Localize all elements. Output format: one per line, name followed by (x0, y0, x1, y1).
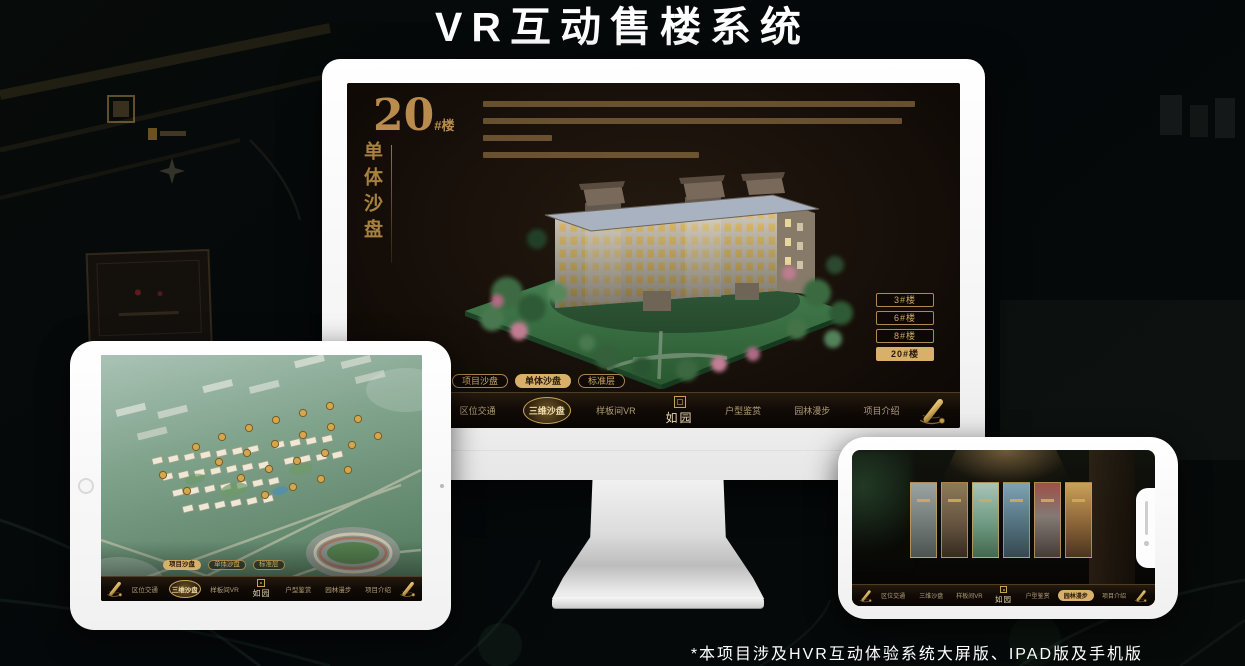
floor-button-20[interactable]: 20#楼 (876, 347, 934, 361)
phone-navbar: 区位交通 三维沙盘 样板间VR 如园 户型鉴赏 园林漫步 项目介绍 (852, 584, 1155, 606)
brand-name: 如园 (989, 594, 1019, 605)
brand-logo: 如园 (651, 396, 709, 426)
gallery-card[interactable] (1003, 482, 1030, 558)
description-line (483, 118, 902, 124)
scroll-menu-icon[interactable] (858, 588, 874, 604)
scroll-menu-icon[interactable] (916, 394, 950, 428)
tablet-subtabs: 项目沙盘 单体沙盘 标准层 (163, 560, 285, 570)
nav-model-room-vr[interactable]: 样板间VR (950, 591, 988, 600)
floor-button-6[interactable]: 6#楼 (876, 311, 934, 325)
brand-name: 如园 (244, 588, 278, 599)
speaker-icon (1145, 501, 1148, 535)
phone-screen: 区位交通 三维沙盘 样板间VR 如园 户型鉴赏 园林漫步 项目介绍 (852, 450, 1155, 606)
scroll-menu-icon[interactable] (1133, 588, 1149, 604)
building-number-suffix: #楼 (434, 118, 454, 133)
camera-icon (1144, 541, 1149, 546)
brand-logo: 如园 (989, 586, 1019, 605)
nav-location-transport[interactable]: 区位交通 (443, 404, 512, 417)
nav-garden-walk[interactable]: 园林漫步 (778, 404, 847, 417)
nav-floorplan-gallery[interactable]: 户型鉴赏 (1019, 591, 1057, 600)
tablet-device: 项目沙盘 单体沙盘 标准层 区位交通 三维沙盘 样板间VR 如园 户型鉴赏 园林… (70, 341, 451, 630)
nav-3d-sandbox[interactable]: 三维沙盘 (912, 591, 950, 600)
subtab-standard-floor[interactable]: 标准层 (578, 374, 625, 388)
card-caption (1041, 499, 1054, 502)
promo-canvas: VR互动售楼系统 20#楼 单体沙盘 (0, 0, 1245, 666)
nav-3d-sandbox[interactable]: 三维沙盘 (165, 580, 205, 598)
nav-model-room-vr[interactable]: 样板间VR (581, 404, 650, 417)
subtab-standard-floor[interactable]: 标准层 (253, 560, 285, 570)
scroll-menu-icon[interactable] (398, 579, 418, 599)
gallery-card[interactable] (972, 482, 999, 558)
subtab-project-sandbox[interactable]: 项目沙盘 (452, 374, 508, 388)
subtab-single-sandbox[interactable]: 单体沙盘 (208, 560, 246, 570)
gallery-card[interactable] (941, 482, 968, 558)
nav-project-intro[interactable]: 项目介绍 (847, 404, 916, 417)
nav-garden-walk[interactable]: 园林漫步 (318, 584, 358, 594)
nav-location-transport[interactable]: 区位交通 (125, 584, 165, 594)
floor-button-3[interactable]: 3#楼 (876, 293, 934, 307)
nav-project-intro[interactable]: 项目介绍 (1095, 591, 1133, 600)
nav-location-transport[interactable]: 区位交通 (874, 591, 912, 600)
foliage-shadow (852, 450, 912, 570)
tablet-screen: 项目沙盘 单体沙盘 标准层 区位交通 三维沙盘 样板间VR 如园 户型鉴赏 园林… (101, 355, 422, 601)
seal-icon (1000, 586, 1007, 593)
nav-floorplan-gallery[interactable]: 户型鉴赏 (278, 584, 318, 594)
nav-project-intro[interactable]: 项目介绍 (358, 584, 398, 594)
building-3d-model[interactable] (437, 143, 873, 389)
courtyard-ceiling-light (940, 450, 1072, 484)
card-caption (917, 499, 930, 502)
card-caption (979, 499, 992, 502)
subtab-single-sandbox[interactable]: 单体沙盘 (515, 374, 571, 388)
gallery-card[interactable] (1034, 482, 1061, 558)
nav-model-room-vr[interactable]: 样板间VR (205, 584, 245, 594)
seal-icon (674, 396, 686, 408)
building-subtitle: 单体沙盘 (359, 141, 386, 245)
home-button[interactable] (78, 478, 94, 494)
sandbox-subtabs: 项目沙盘 单体沙盘 标准层 (452, 374, 625, 388)
tablet-navbar: 区位交通 三维沙盘 样板间VR 如园 户型鉴赏 园林漫步 项目介绍 (101, 576, 422, 601)
scroll-menu-icon[interactable] (105, 579, 125, 599)
card-caption (1010, 499, 1023, 502)
nav-3d-sandbox[interactable]: 三维沙盘 (512, 397, 581, 424)
floor-button-group: 3#楼 6#楼 8#楼 20#楼 (876, 293, 934, 365)
camera-icon (440, 484, 444, 488)
floor-button-8[interactable]: 8#楼 (876, 329, 934, 343)
brand-logo: 如园 (244, 579, 278, 599)
building-title: 20#楼 (373, 93, 454, 139)
page-title: VR互动售楼系统 (0, 1, 1245, 53)
gallery-card[interactable] (910, 482, 937, 558)
building-number: 20 (373, 90, 434, 141)
card-caption (948, 499, 961, 502)
subtab-project-sandbox[interactable]: 项目沙盘 (163, 560, 201, 570)
nav-floorplan-gallery[interactable]: 户型鉴赏 (709, 404, 778, 417)
card-caption (1072, 499, 1085, 502)
brand-name: 如园 (651, 409, 709, 426)
description-line (483, 135, 552, 141)
scene-gallery (910, 482, 1092, 558)
phone-device: 区位交通 三维沙盘 样板间VR 如园 户型鉴赏 园林漫步 项目介绍 (838, 437, 1178, 619)
nav-garden-walk[interactable]: 园林漫步 (1057, 590, 1095, 601)
monitor-stand-base (552, 597, 764, 609)
gallery-card[interactable] (1065, 482, 1092, 558)
footnote: *本项目涉及HVR互动体验系统大屏版、IPAD版及手机版 (691, 640, 1143, 664)
seal-icon (257, 579, 265, 587)
phone-notch (1136, 488, 1155, 568)
description-line (483, 101, 915, 107)
pillar-shadow (1089, 450, 1135, 606)
title-divider (391, 145, 392, 263)
